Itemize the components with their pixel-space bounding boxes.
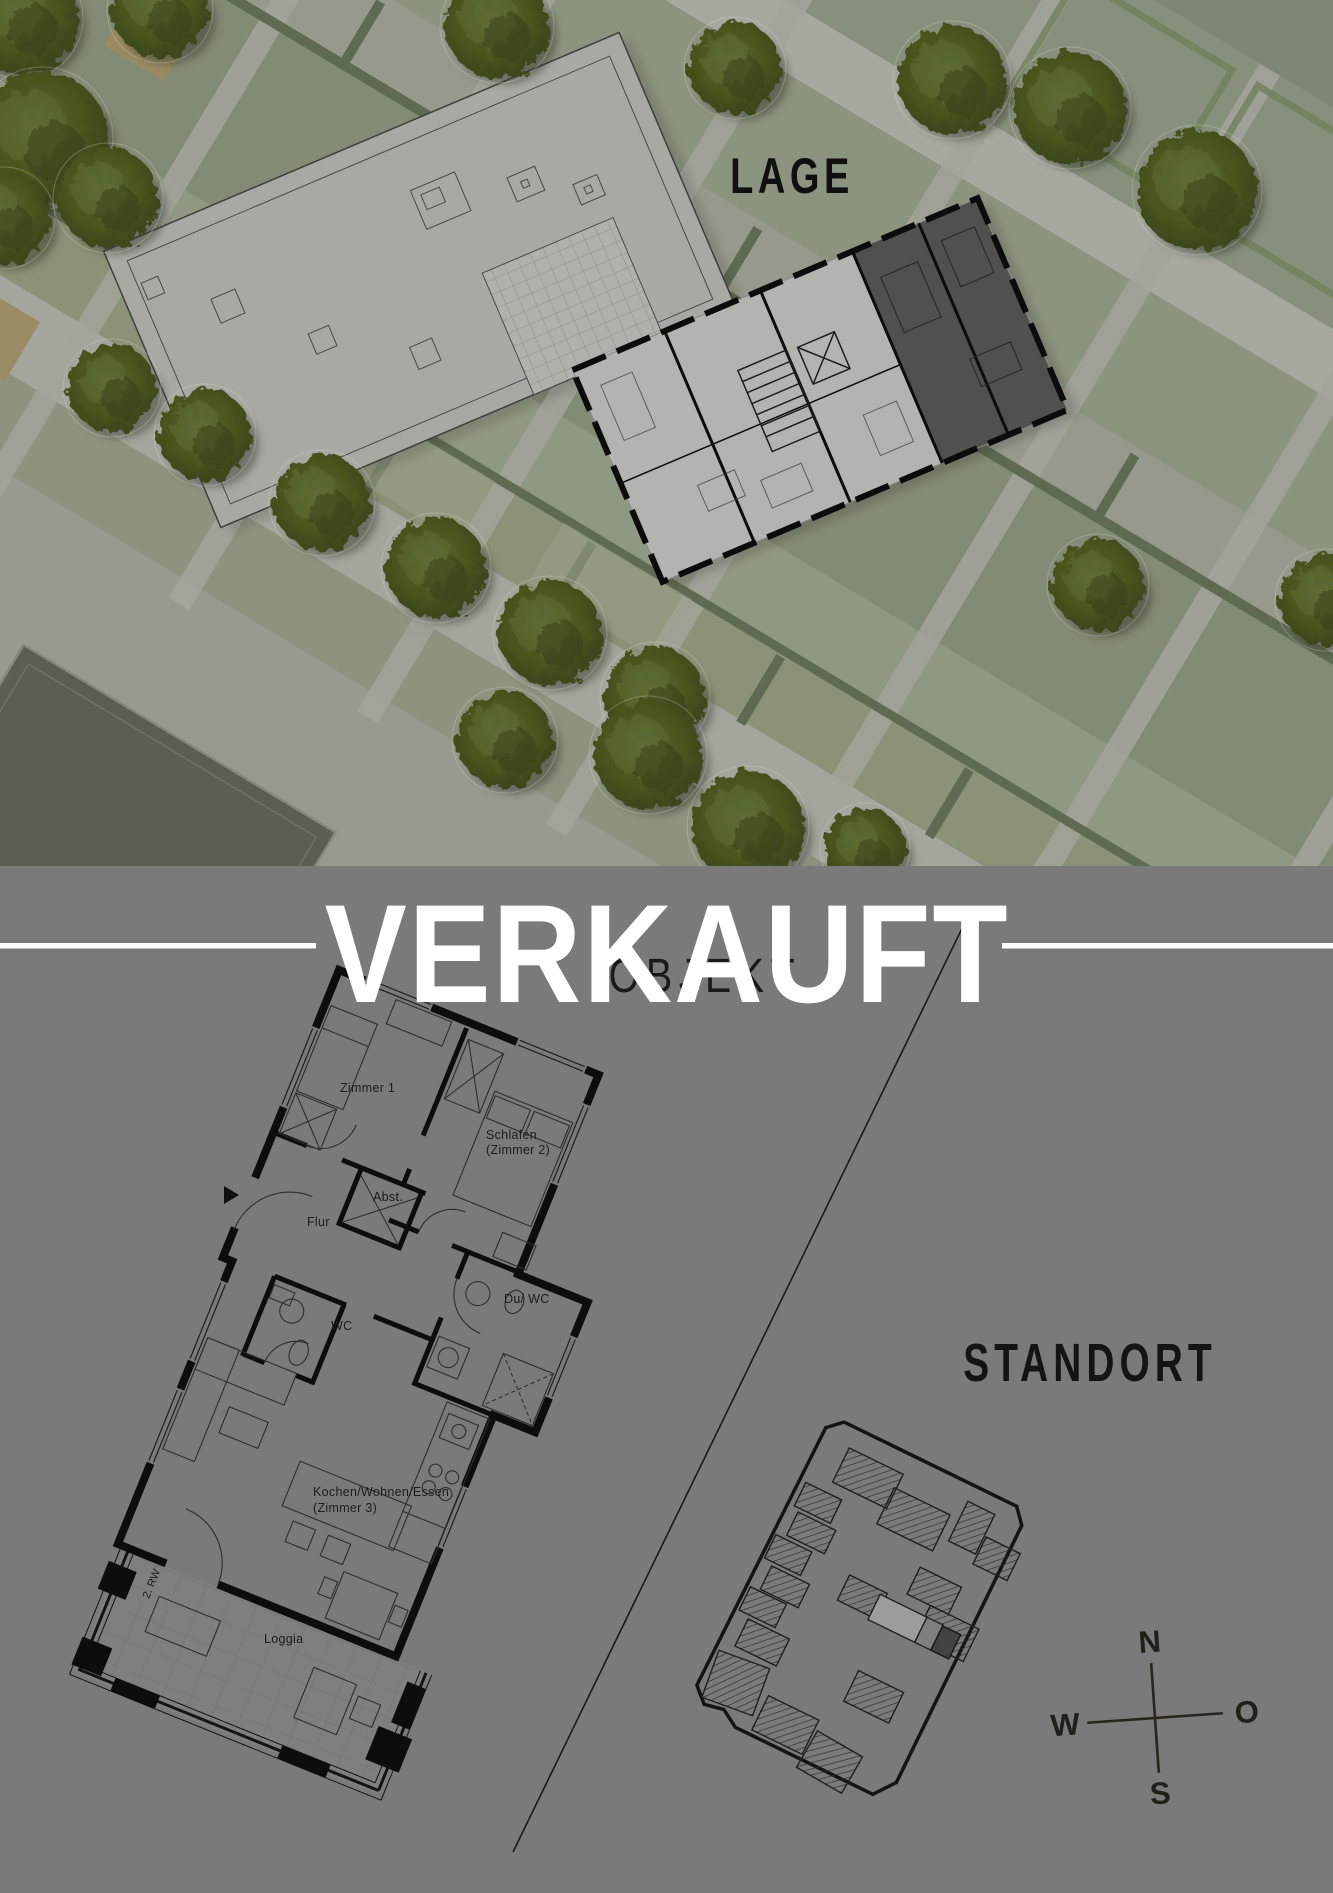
room-label-kochen2: (Zimmer 3)	[313, 1501, 377, 1515]
compass-north: N	[1137, 1623, 1162, 1659]
room-label-duwc: Du/ WC	[504, 1292, 550, 1306]
banner-rule-right	[1002, 943, 1333, 949]
room-label-flur: Flur	[307, 1215, 330, 1229]
room-label-schlafen2: (Zimmer 2)	[486, 1143, 550, 1157]
room-label-abst: Abst.	[373, 1190, 403, 1204]
room-label-zimmer1: Zimmer 1	[340, 1081, 395, 1095]
room-label-loggia: Loggia	[264, 1632, 303, 1646]
verkauft-text: VERKAUFT	[325, 876, 1010, 1032]
room-label-wc: WC	[331, 1319, 352, 1333]
compass-south: S	[1149, 1775, 1172, 1811]
room-label-kochen: Kochen/Wohnen/Essen	[313, 1485, 449, 1499]
room-label-schlafen: Schlafen	[486, 1128, 537, 1142]
lage-title: LAGE	[730, 149, 854, 204]
standort-title: STANDORT	[963, 1332, 1216, 1393]
compass-east: O	[1234, 1694, 1261, 1731]
banner-rule-left	[0, 943, 316, 949]
brochure-page: LAGE	[0, 0, 1333, 1893]
compass-west: W	[1049, 1706, 1081, 1743]
page-canvas: LAGE	[0, 0, 1333, 1893]
